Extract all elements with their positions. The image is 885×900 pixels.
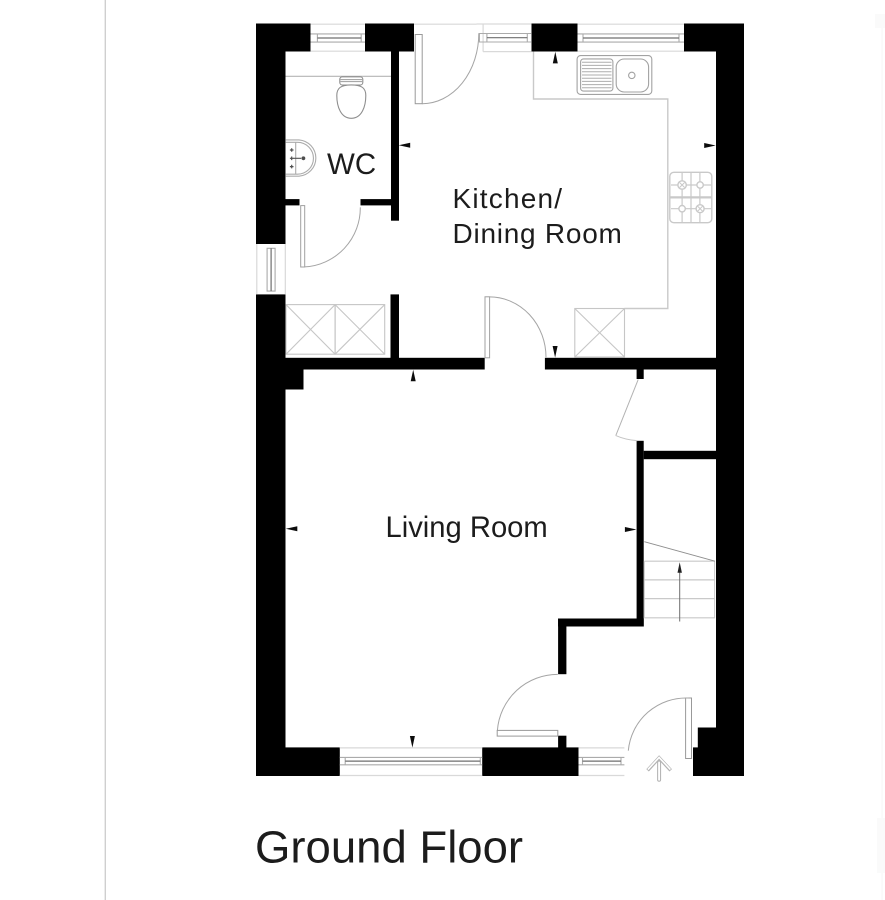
svg-text:WC: WC (327, 148, 376, 181)
svg-text:Ground Floor: Ground Floor (255, 822, 523, 873)
svg-text:Kitchen/: Kitchen/ (453, 183, 564, 214)
svg-text:Dining Room: Dining Room (453, 218, 623, 249)
svg-text:Living Room: Living Room (386, 512, 548, 544)
